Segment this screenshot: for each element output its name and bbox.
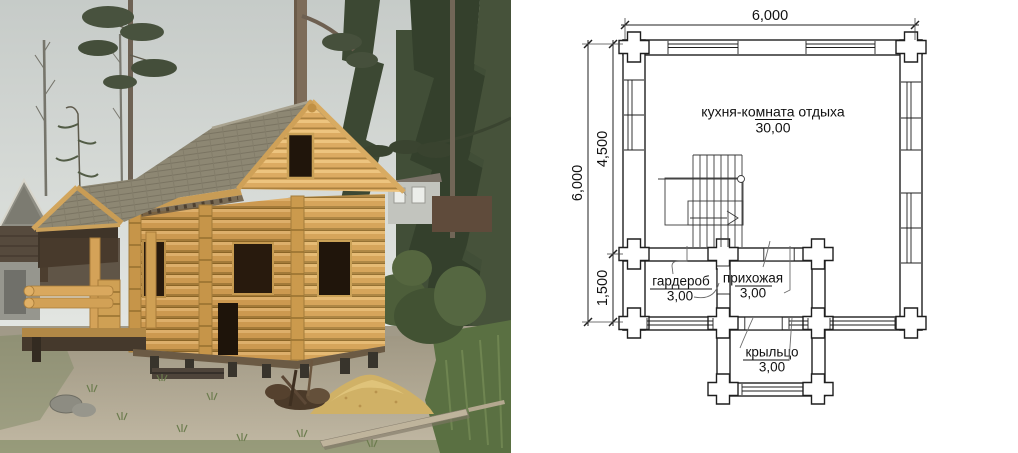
room-label-kitchen: кухня-комната отдыха 30,00 — [701, 104, 845, 136]
staircase — [658, 155, 745, 247]
room-name: крыльцо — [745, 345, 798, 360]
dim-left-upper: 4,500 — [595, 131, 611, 167]
porch-railing — [27, 286, 113, 296]
room-area: 3,00 — [667, 289, 693, 304]
front-window — [233, 243, 273, 294]
photo-canvas — [0, 0, 511, 453]
room-name: гардероб — [652, 274, 710, 289]
room-name: прихожая — [723, 271, 783, 286]
porch-post — [146, 232, 156, 328]
room-label-hallway: прихожая 3,00 — [723, 271, 783, 301]
dim-left-lower: 1,500 — [595, 270, 611, 306]
plan-canvas: 6,000 6,000 4,500 1,500 кухня-комната от… — [511, 0, 1018, 453]
plan-walls — [623, 40, 922, 396]
window-symbols — [624, 41, 921, 395]
screenshot-root: 6,000 6,000 4,500 1,500 кухня-комната от… — [0, 0, 1018, 453]
side-window — [318, 241, 351, 296]
dim-top-width: 6,000 — [752, 8, 788, 24]
room-label-wardrobe: гардероб 3,00 — [650, 274, 712, 304]
gable-window — [288, 134, 313, 178]
construction-photo — [0, 0, 511, 453]
room-name: кухня-комната отдыха — [701, 104, 845, 120]
room-area: 3,00 — [759, 360, 785, 375]
room-area: 30,00 — [755, 120, 790, 136]
floor-plan: 6,000 6,000 4,500 1,500 кухня-комната от… — [511, 0, 1018, 453]
door-opening — [218, 303, 238, 355]
room-area: 3,00 — [740, 286, 766, 301]
dim-left-total: 6,000 — [570, 165, 586, 201]
